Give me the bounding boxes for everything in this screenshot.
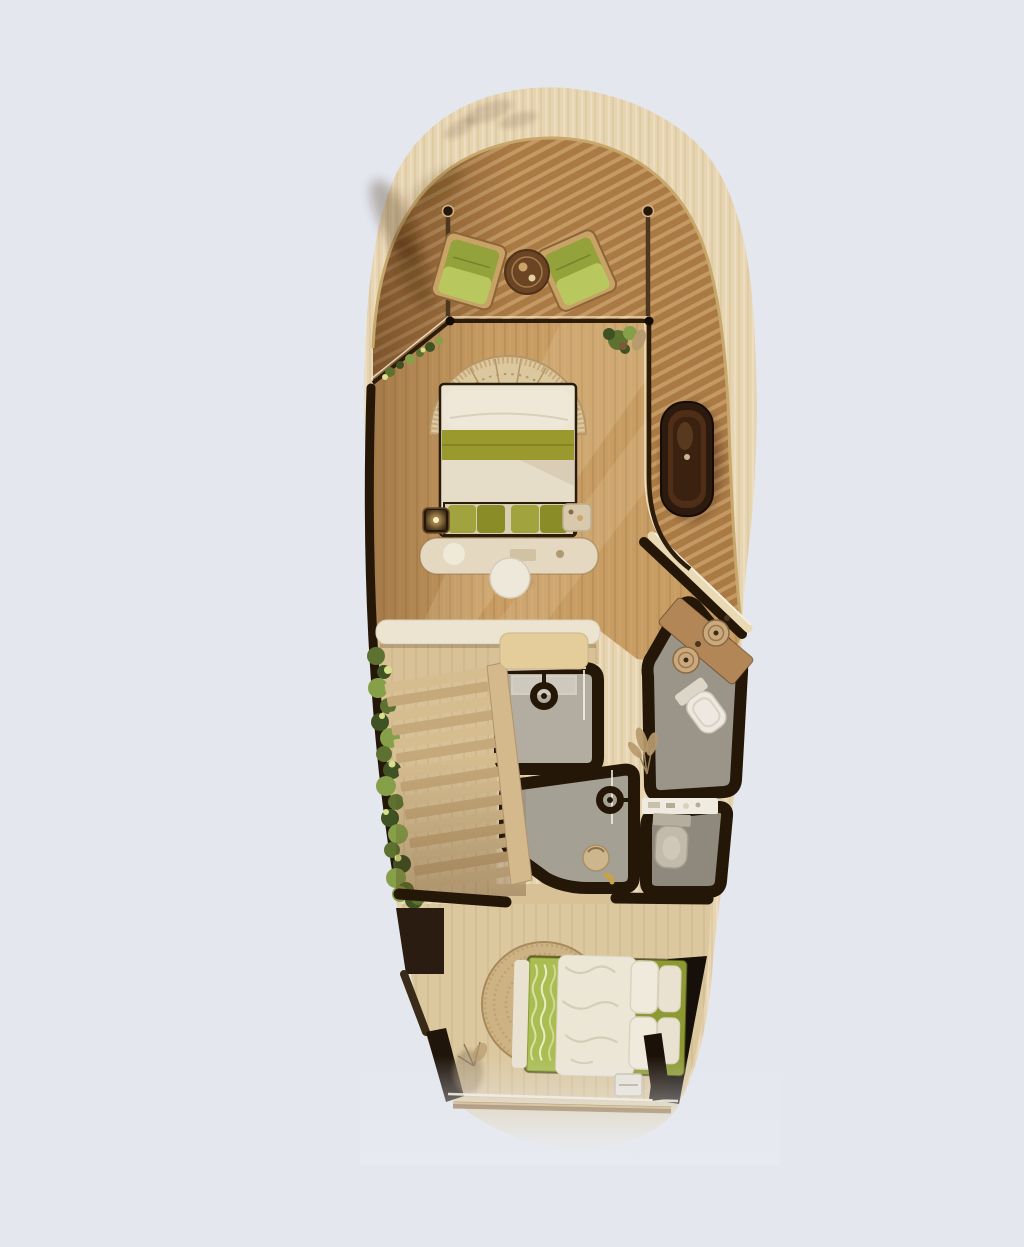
nightstand-right xyxy=(563,504,591,531)
toilet-lower xyxy=(650,813,691,869)
wall-segment xyxy=(616,898,708,899)
outdoor-bathtub xyxy=(661,402,722,520)
post-top xyxy=(643,206,654,217)
bench-cushion xyxy=(500,633,588,669)
nightstand-left xyxy=(423,508,449,533)
floorplan-render xyxy=(40,16,1024,1231)
wardrobe-panel xyxy=(396,908,444,974)
round-side-table xyxy=(505,250,549,294)
tub-drain xyxy=(684,454,690,460)
between-wc-shelf xyxy=(642,798,718,814)
foot-bench xyxy=(512,960,530,1068)
duvet-bolster xyxy=(444,390,572,428)
post-top xyxy=(443,206,454,217)
